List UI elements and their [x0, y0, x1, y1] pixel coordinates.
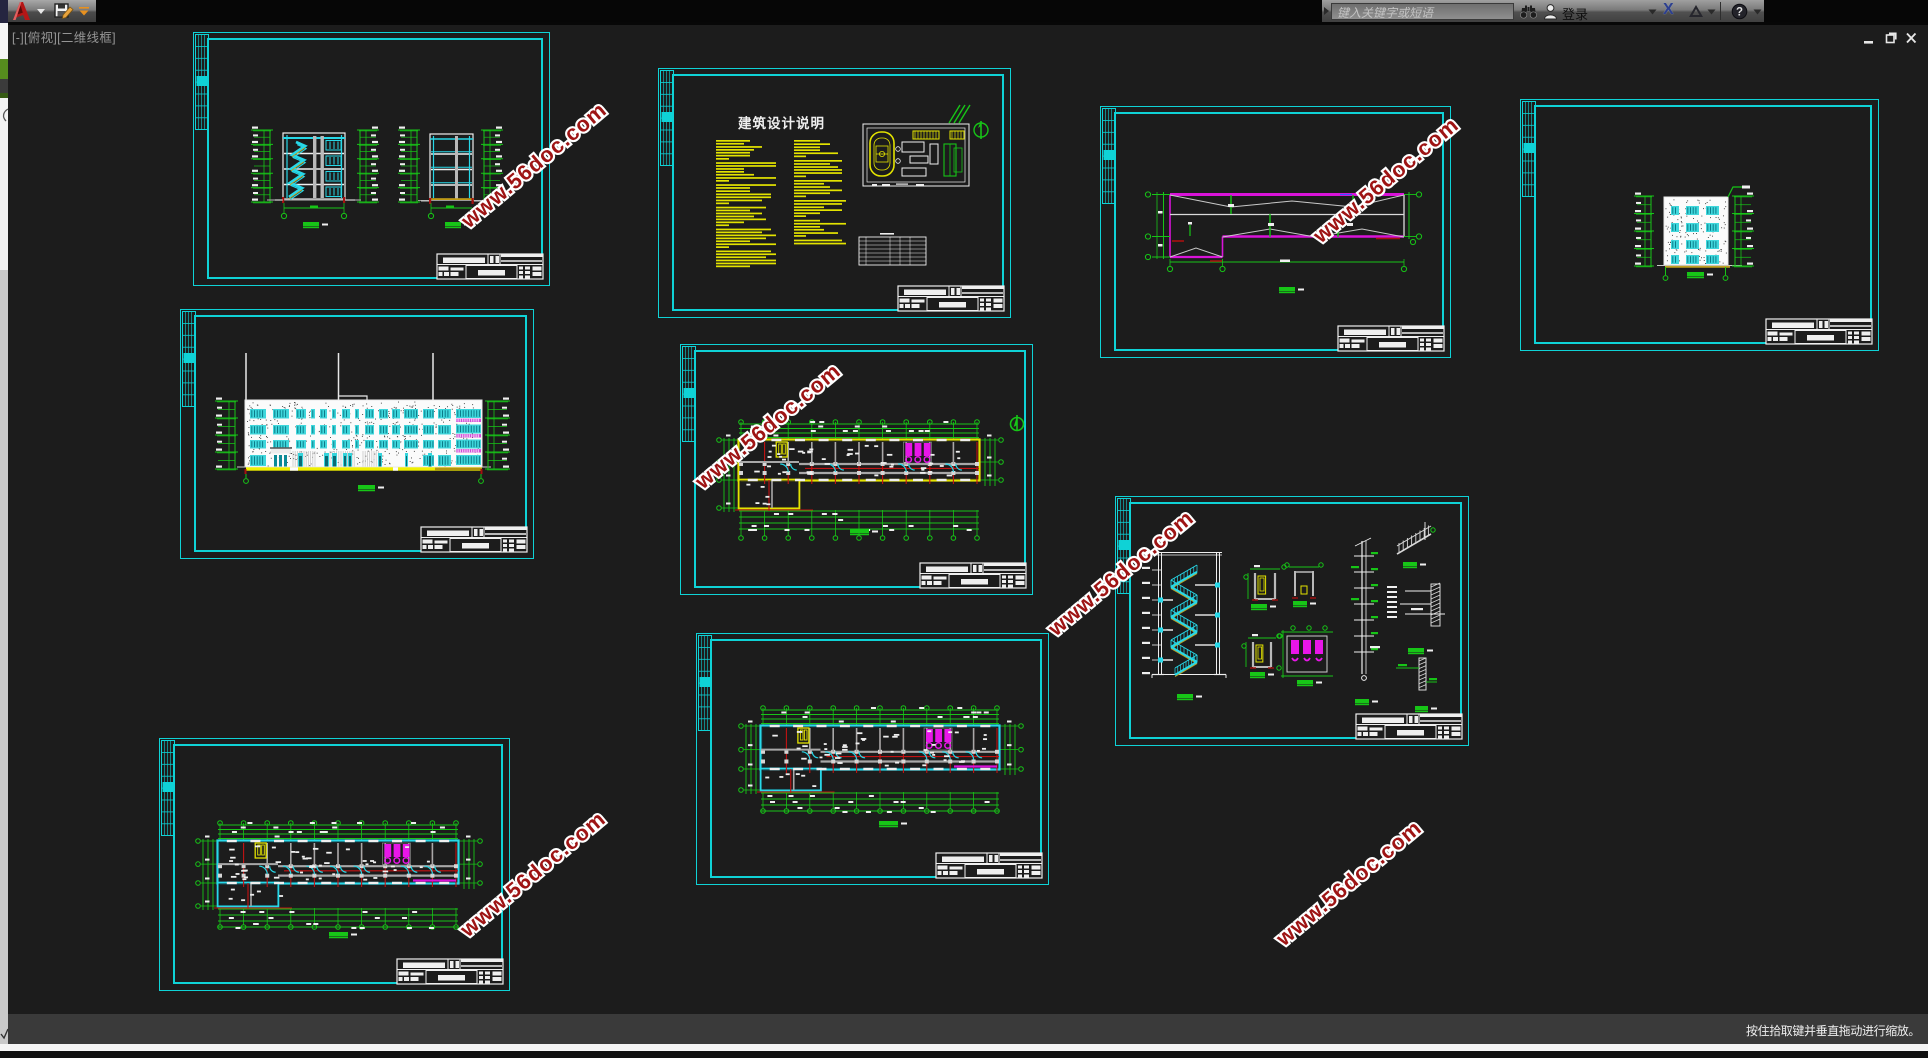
svg-text:建筑设计说明: 建筑设计说明: [737, 115, 825, 131]
svg-text:?: ?: [1736, 7, 1743, 19]
